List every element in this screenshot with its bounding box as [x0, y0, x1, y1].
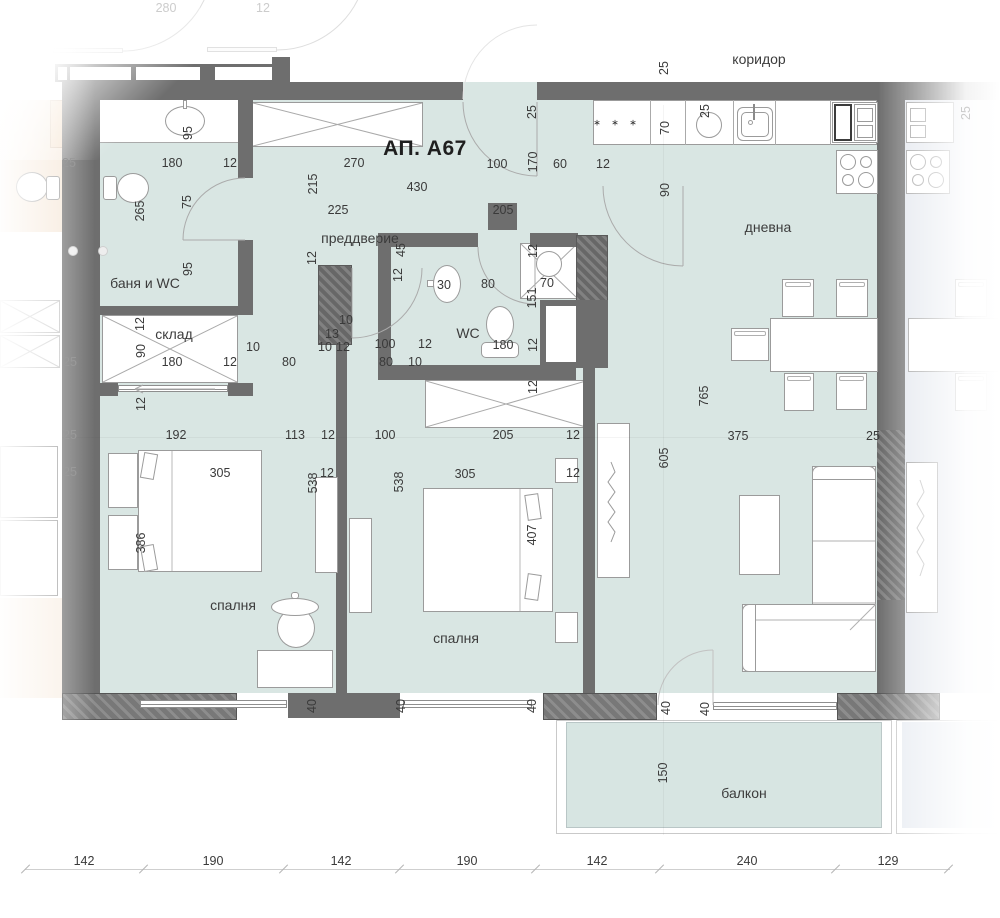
dimension-label: 270	[344, 156, 365, 170]
dimension-label: 12	[305, 251, 319, 265]
dimension-label: 25	[657, 61, 671, 75]
dimension-label: 70	[658, 121, 672, 135]
dimension-label: 265	[133, 201, 147, 222]
dimension-label: 12	[134, 397, 148, 411]
dimension-label: 10	[339, 313, 353, 327]
dimension-label: 45	[394, 243, 408, 257]
room-label: балкон	[721, 785, 766, 801]
dimension-label: 190	[203, 854, 224, 868]
dimension-label: 40	[659, 701, 673, 715]
dimension-label: 100	[487, 157, 508, 171]
labels-layer: 28012коридор2525951801225270100170601225…	[0, 0, 1000, 918]
dimension-label: 129	[878, 854, 899, 868]
dimension-label: 10	[318, 340, 332, 354]
dimension-label: 538	[306, 473, 320, 494]
dimension-label: 180	[493, 338, 514, 352]
dimension-label: 40	[305, 699, 319, 713]
dimension-label: 25	[866, 429, 880, 443]
dimension-label: 80	[379, 355, 393, 369]
dimension-label: 142	[587, 854, 608, 868]
dimension-label: 90	[658, 183, 672, 197]
dimension-label: 80	[481, 277, 495, 291]
dimension-label: 100	[375, 337, 396, 351]
dimension-label: 95	[181, 126, 195, 140]
dimension-label: 40	[698, 702, 712, 716]
dimension-label: 13	[325, 327, 339, 341]
room-label: баня и WC	[110, 275, 180, 291]
room-label: WC	[456, 325, 479, 341]
room-label: спалня	[433, 630, 479, 646]
dimension-label: 30	[437, 278, 451, 292]
dimension-label: 60	[553, 157, 567, 171]
dimension-label: 75	[180, 195, 194, 209]
room-label: коридор	[732, 51, 785, 67]
dimension-label: 25	[63, 428, 77, 442]
dimension-label: 95	[181, 262, 195, 276]
dimension-label: 10	[408, 355, 422, 369]
dimension-label: 305	[455, 467, 476, 481]
dimension-label: ∗ ∗ ∗	[593, 118, 641, 129]
dimension-label: 305	[210, 466, 231, 480]
dimension-label: 10	[246, 340, 260, 354]
dimension-label: 25	[63, 355, 77, 369]
dimension-label: 407	[525, 525, 539, 546]
dimension-label: 12	[566, 466, 580, 480]
floor-plan: 28012коридор2525951801225270100170601225…	[0, 0, 1000, 918]
dimension-label: 180	[162, 355, 183, 369]
dimension-label: 430	[407, 180, 428, 194]
dimension-label: 25	[62, 156, 76, 170]
dimension-label: 12	[526, 244, 540, 258]
room-label: преддверие	[321, 230, 399, 246]
dimension-label: 538	[392, 472, 406, 493]
dimension-label: 151	[525, 288, 539, 309]
dimension-label: 12	[336, 340, 350, 354]
dimension-label: 12	[321, 428, 335, 442]
room-label: склад	[155, 326, 192, 342]
dimension-label: 80	[282, 355, 296, 369]
dimension-label: 190	[457, 854, 478, 868]
dimension-label: 192	[166, 428, 187, 442]
dimension-label: 205	[493, 203, 514, 217]
dimension-label: 765	[697, 386, 711, 407]
dimension-label: 12	[223, 156, 237, 170]
room-label: дневна	[745, 219, 792, 235]
room-label: спалня	[210, 597, 256, 613]
dimension-label: 25	[959, 106, 973, 120]
dimension-label: 12	[596, 157, 610, 171]
dimension-label: 280	[156, 1, 177, 15]
dimension-label: 12	[566, 428, 580, 442]
dimension-label: 12	[256, 1, 270, 15]
dimension-label: 12	[133, 317, 147, 331]
dimension-label: 90	[134, 344, 148, 358]
dimension-label: 225	[328, 203, 349, 217]
dimension-label: 240	[737, 854, 758, 868]
dimension-label: 215	[306, 174, 320, 195]
dimension-label: 142	[74, 854, 95, 868]
dimension-label: 170	[526, 152, 540, 173]
dimension-label: 205	[493, 428, 514, 442]
dimension-label: 25	[63, 465, 77, 479]
dimension-label: 12	[418, 337, 432, 351]
dimension-label: 100	[375, 428, 396, 442]
dimension-label: 12	[391, 268, 405, 282]
dimension-label: 386	[134, 533, 148, 554]
dimension-label: 150	[656, 763, 670, 784]
dimension-label: 113	[285, 428, 305, 442]
dimension-label: 40	[525, 699, 539, 713]
dimension-label: 12	[223, 355, 237, 369]
dimension-label: 375	[728, 429, 749, 443]
dimension-label: 12	[320, 466, 334, 480]
dimension-label: 40	[394, 699, 408, 713]
dimension-label: 180	[162, 156, 183, 170]
plan-title: АП. А67	[383, 137, 467, 161]
dimension-label: 142	[331, 854, 352, 868]
dimension-label: 25	[698, 104, 712, 118]
dimension-label: 25	[525, 105, 539, 119]
dimension-label: 12	[526, 380, 540, 394]
dimension-label: 70	[540, 276, 554, 290]
dimension-label: 12	[526, 338, 540, 352]
dimension-label: 605	[657, 448, 671, 469]
